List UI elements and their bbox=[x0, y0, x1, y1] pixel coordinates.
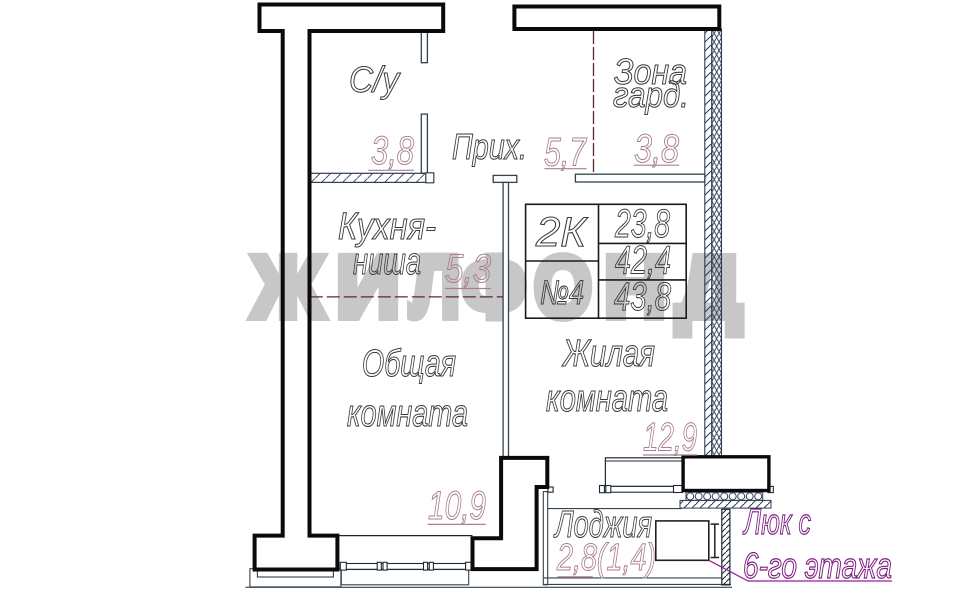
svg-text:10,9: 10,9 bbox=[428, 484, 486, 528]
svg-text:№4: №4 bbox=[540, 274, 584, 312]
svg-text:6-го этажа: 6-го этажа bbox=[743, 545, 892, 586]
svg-text:5,7: 5,7 bbox=[544, 131, 587, 175]
svg-text:Жилая: Жилая bbox=[561, 333, 655, 375]
svg-text:2К: 2К bbox=[535, 208, 588, 255]
svg-text:12,9: 12,9 bbox=[643, 416, 697, 460]
svg-text:Люк с: Люк с bbox=[743, 501, 811, 542]
svg-text:43,8: 43,8 bbox=[614, 275, 672, 319]
svg-text:комната: комната bbox=[347, 393, 468, 435]
svg-text:ниша: ниша bbox=[353, 241, 421, 283]
svg-text:Ж: Ж bbox=[251, 239, 325, 336]
svg-text:Прих.: Прих. bbox=[452, 126, 527, 167]
svg-text:комната: комната bbox=[546, 378, 668, 420]
svg-text:гард.: гард. bbox=[613, 74, 689, 115]
svg-text:3,8: 3,8 bbox=[371, 129, 415, 173]
svg-text:Общая: Общая bbox=[362, 343, 456, 385]
svg-text:2,8(1,4): 2,8(1,4) bbox=[556, 537, 656, 579]
svg-text:С/у: С/у bbox=[349, 59, 401, 100]
svg-text:3,8: 3,8 bbox=[634, 127, 680, 171]
svg-text:5,3: 5,3 bbox=[445, 247, 491, 291]
